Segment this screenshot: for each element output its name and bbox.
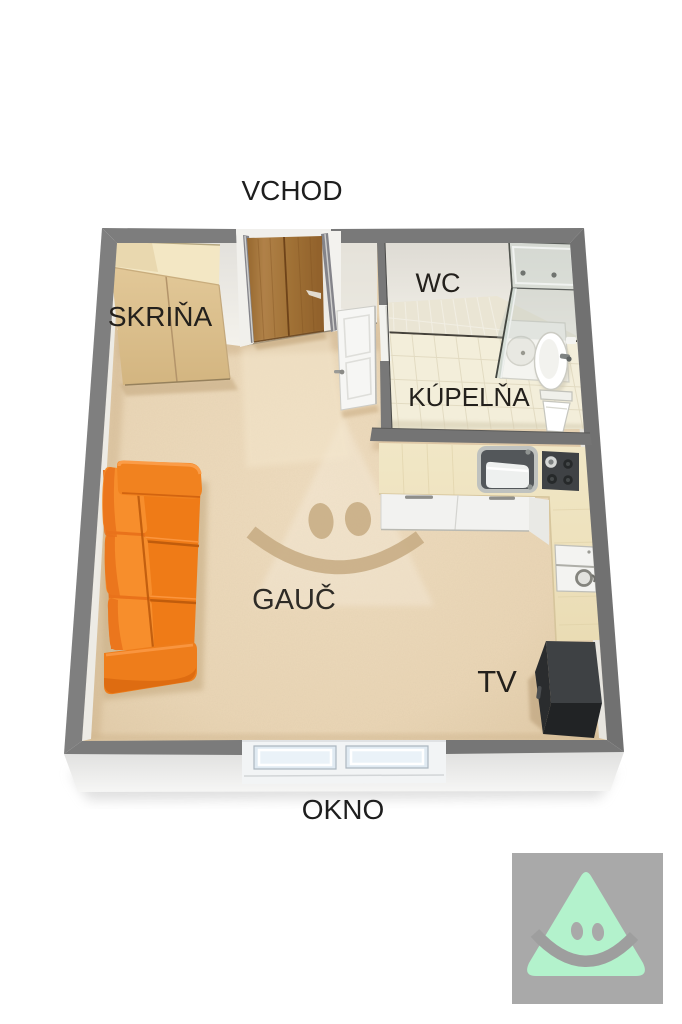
- svg-text:OKNO: OKNO: [302, 794, 384, 825]
- svg-text:GAUČ: GAUČ: [252, 582, 336, 616]
- svg-text:KÚPELŇA: KÚPELŇA: [408, 382, 530, 412]
- svg-text:SKRIŇA: SKRIŇA: [108, 301, 213, 332]
- svg-text:VCHOD: VCHOD: [241, 175, 342, 206]
- svg-text:TV: TV: [477, 664, 517, 699]
- svg-text:WC: WC: [416, 268, 461, 298]
